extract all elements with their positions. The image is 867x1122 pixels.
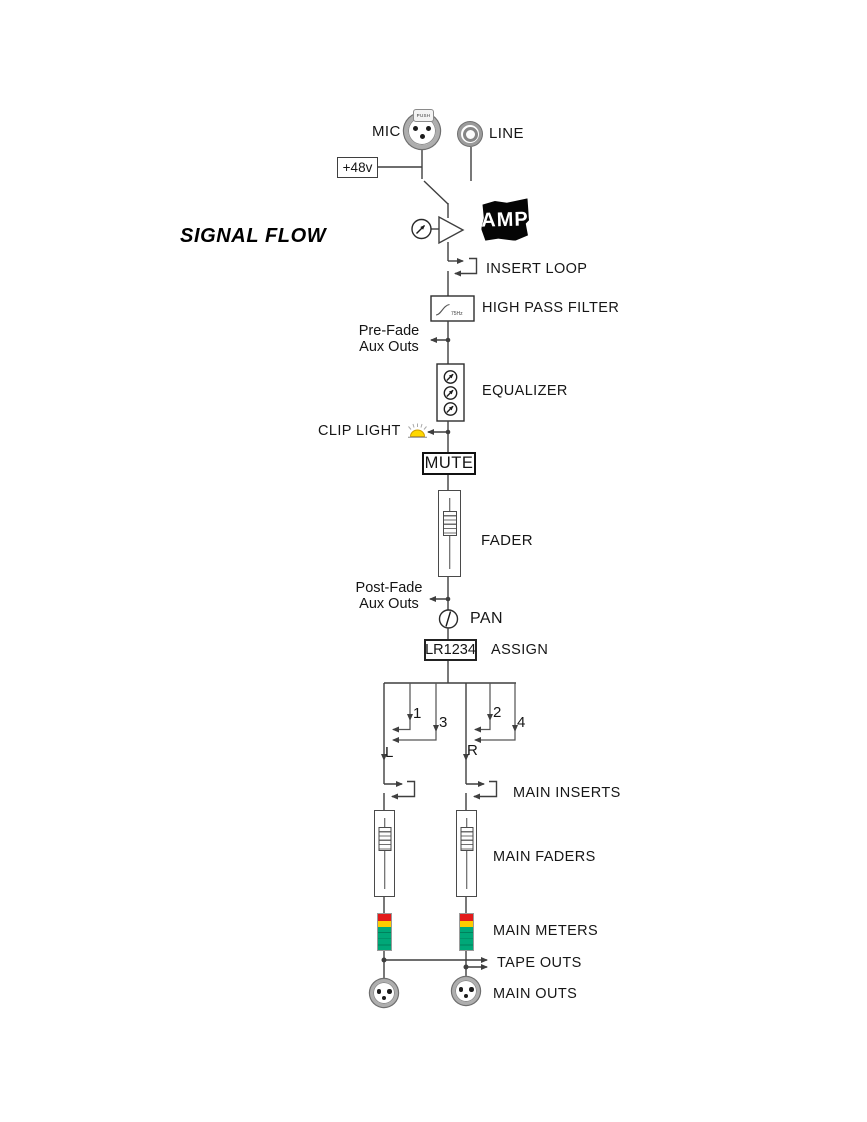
fader-cap [443,511,457,536]
bus-3-collect [393,731,436,740]
meter-red-segment [460,914,473,921]
main-faders-label: MAIN FADERS [493,849,596,865]
xlr-pin [420,134,425,139]
high-pass-filter-label: HIGH PASS FILTER [482,300,619,316]
pan-label: PAN [470,610,503,628]
bus1-label: 1 [413,705,422,722]
jack-inner-ring [463,127,478,142]
amp-stamp: AMP [480,198,529,241]
main-fader-left-icon [374,810,395,897]
fader-cap [460,827,473,851]
main-inserts-label: MAIN INSERTS [513,785,621,801]
main-out-left-xlr-icon [370,979,398,1007]
page-title: SIGNAL FLOW [180,225,326,248]
equalizer-label: EQUALIZER [482,383,568,399]
xlr-pin [459,987,464,992]
main-meter-right-icon [459,913,474,951]
hpf-box [431,296,474,321]
bus2-label: 2 [493,704,502,721]
hpf-freq-label: 75Hz [451,311,463,317]
signal-flow-diagram: 75Hz [0,0,867,1122]
xlr-pin [377,989,382,994]
bus3-label: 3 [439,714,448,731]
post-fade-aux-label: Post-Fade Aux Outs [352,580,426,612]
main-fader-right-icon [456,810,477,897]
xlr-pin [469,987,474,992]
left-bus-label: L [385,744,394,761]
main-meter-left-icon [377,913,392,951]
tape-outs-label: TAPE OUTS [497,955,582,971]
clip-light-icon [408,424,427,438]
main-meters-label: MAIN METERS [493,923,598,939]
assign-label: ASSIGN [491,642,548,658]
fader-label: FADER [481,532,533,549]
xlr-pin [382,996,387,1001]
post-fade-line1: Post-Fade [352,580,426,596]
clip-light-label: CLIP LIGHT [318,423,401,439]
mute-box: MUTE [422,452,476,475]
xlr-pin [413,126,418,131]
eq-knobs [444,371,456,415]
bus-4-collect [475,731,515,740]
meter-green-segments [460,927,473,950]
bus4-label: 4 [517,714,526,731]
input-select-switch [424,181,448,204]
mic-label: MIC [372,123,401,140]
line-label: LINE [489,125,524,142]
bus-2-collect [475,720,490,730]
amp-triangle-icon [439,217,463,243]
diagram-wire-layer: 75Hz [0,0,867,1122]
meter-red-segment [378,914,391,921]
assign-box: LR1234 [424,639,477,661]
fader-cap [378,827,391,851]
xlr-pin [464,994,469,999]
pre-fade-line2: Aux Outs [352,339,426,355]
meter-green-segments [378,927,391,950]
right-bus-label: R [467,742,478,759]
post-fade-line2: Aux Outs [352,596,426,612]
line-jack-icon [458,122,482,146]
xlr-pin [426,126,431,131]
main-out-right-xlr-icon [452,977,480,1005]
channel-fader-icon [438,490,461,577]
insert-loop-label: INSERT LOOP [486,261,587,277]
pre-fade-aux-label: Pre-Fade Aux Outs [352,323,426,355]
xlr-pin [387,989,392,994]
bus-1-collect [393,720,410,730]
pre-fade-line1: Pre-Fade [352,323,426,339]
xlr-push-tab: PUSH [413,109,434,122]
main-outs-label: MAIN OUTS [493,986,577,1002]
phantom-power-box: +48v [337,157,378,178]
